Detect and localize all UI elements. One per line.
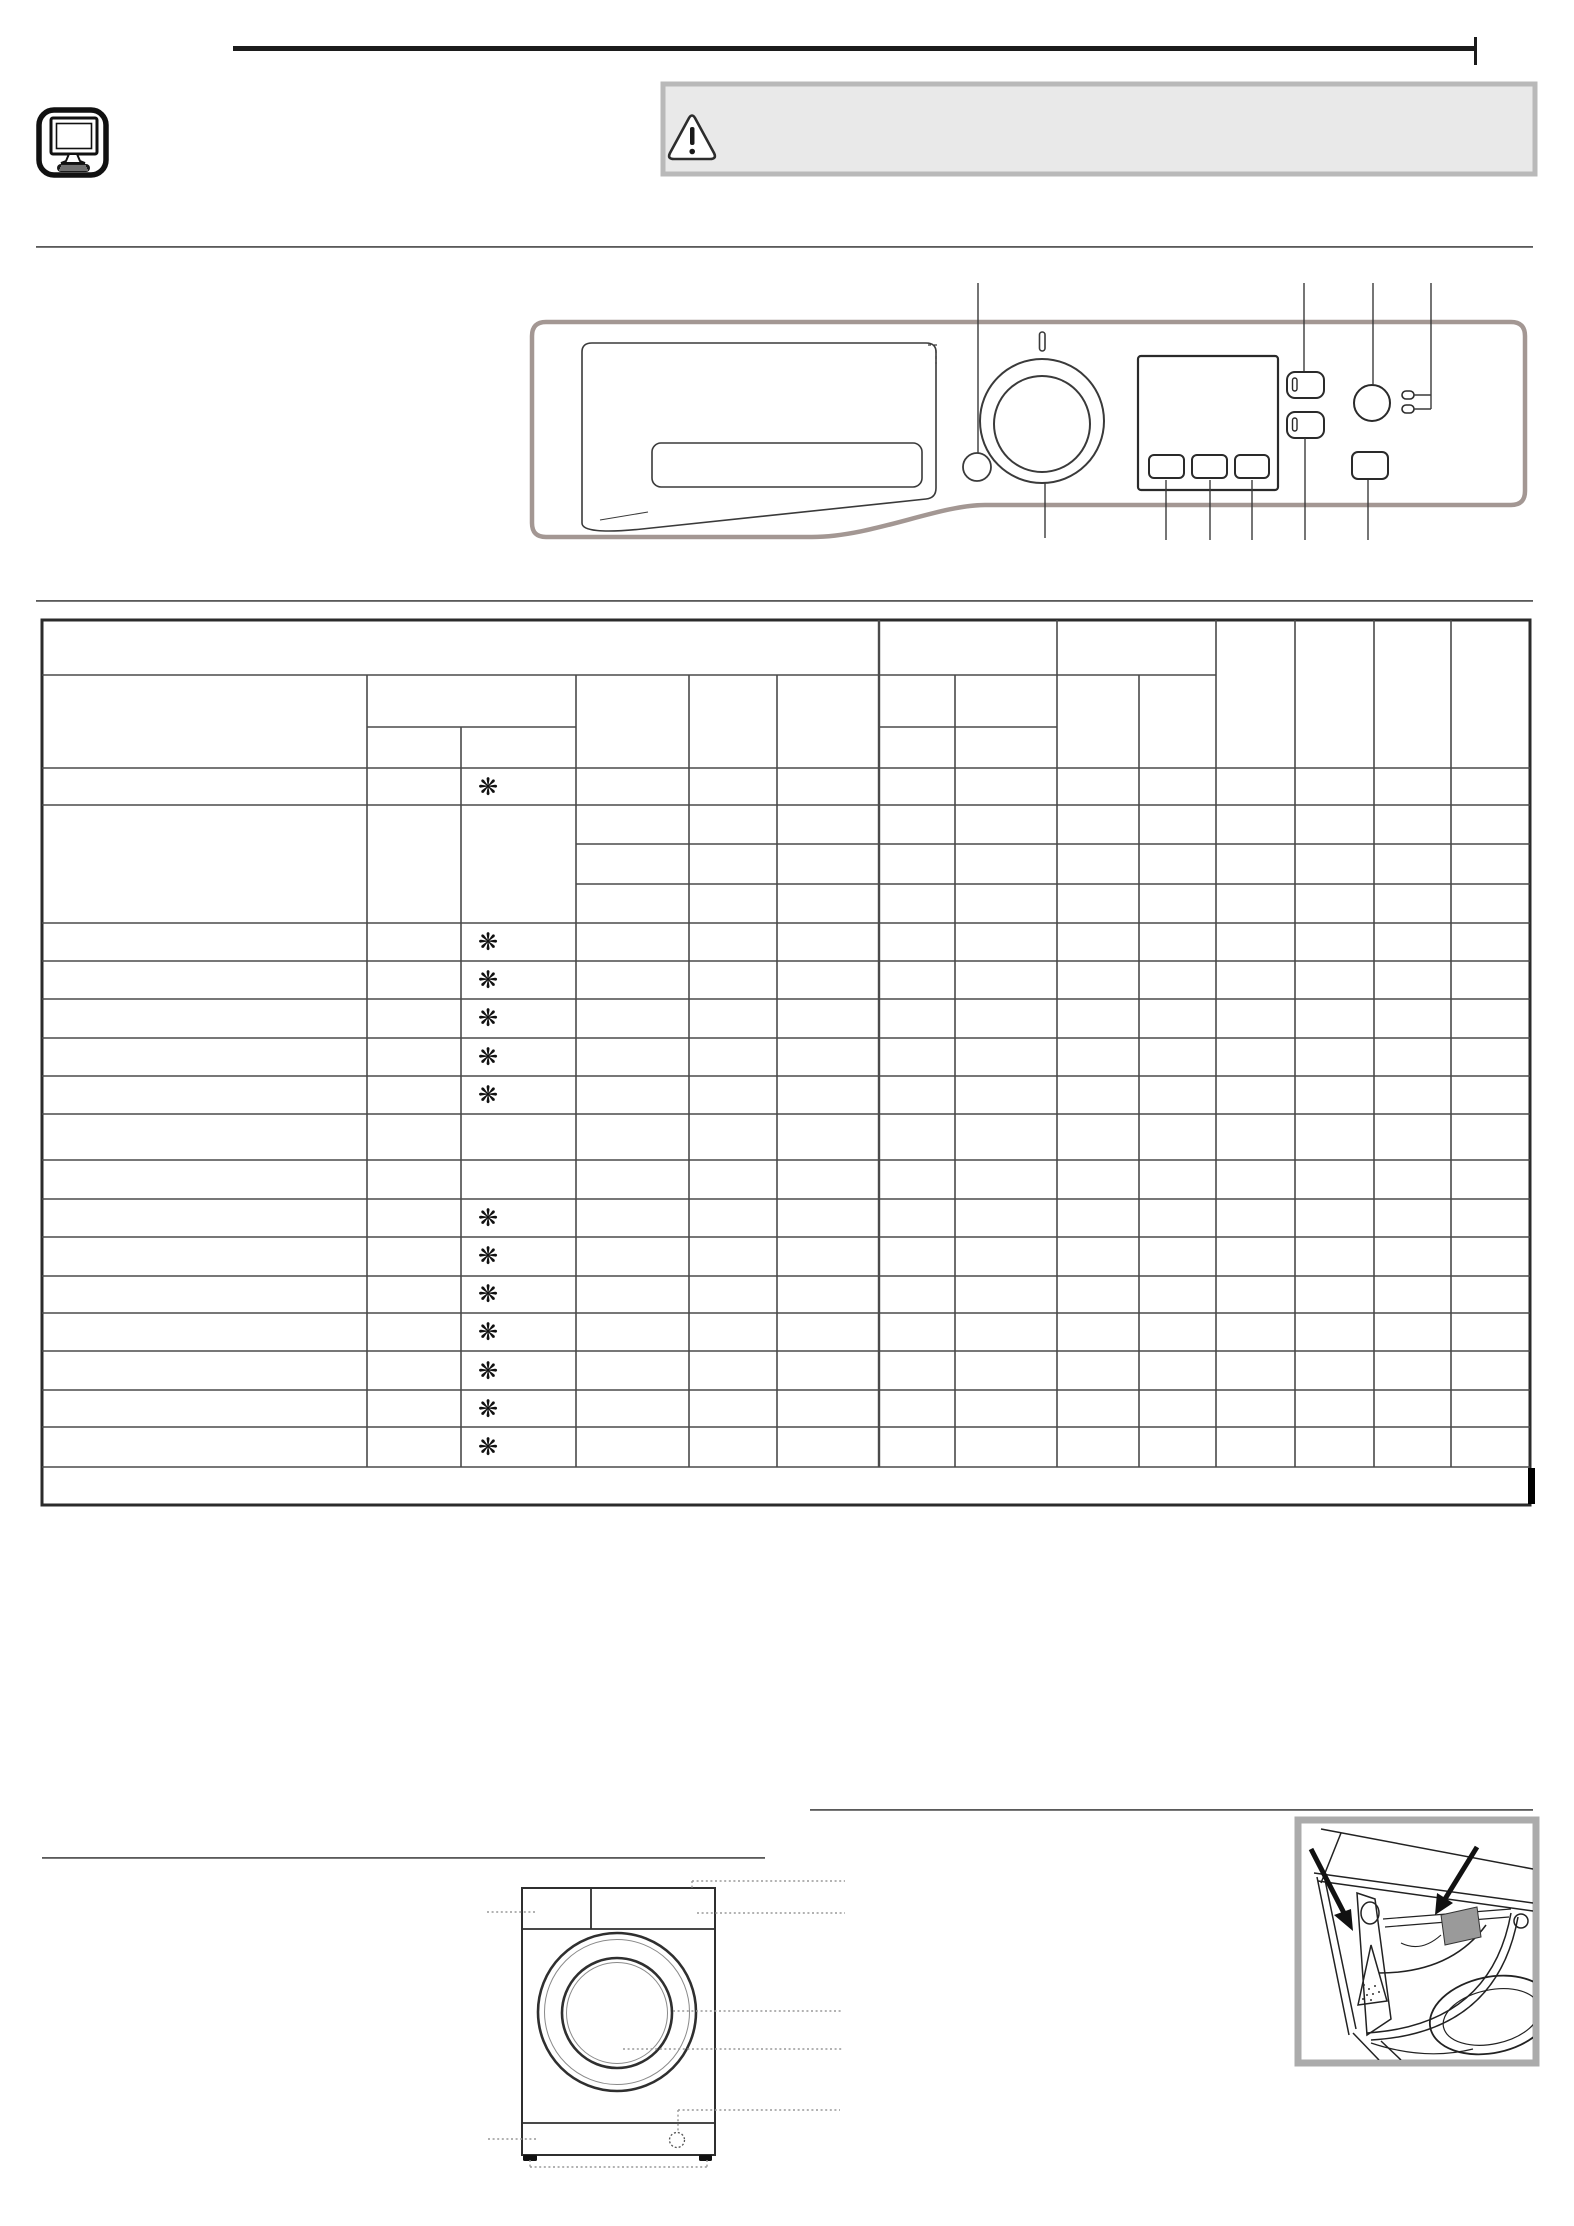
cold-wash-marker: ❋ bbox=[478, 1318, 498, 1346]
cold-wash-marker: ❋ bbox=[478, 1357, 498, 1385]
note-row-end-bar bbox=[1528, 1468, 1535, 1504]
start-pause-button bbox=[1352, 452, 1388, 479]
top-rule bbox=[233, 37, 1477, 65]
detergent-drawer-figure bbox=[810, 1809, 1560, 2065]
small-round-button bbox=[963, 453, 991, 481]
led-indicator-2 bbox=[1402, 405, 1414, 413]
program-knob bbox=[980, 332, 1104, 483]
panel-detergent-drawer bbox=[582, 343, 938, 531]
cold-wash-marker: ❋ bbox=[478, 773, 498, 801]
round-button bbox=[1354, 385, 1390, 421]
figure-frame bbox=[1298, 1820, 1536, 2063]
cold-wash-marker: ❋ bbox=[478, 1204, 498, 1232]
top-rule-line bbox=[233, 46, 1477, 51]
left-column-divider bbox=[42, 1857, 765, 1859]
cold-wash-marker: ❋ bbox=[478, 1280, 498, 1308]
cold-wash-marker: ❋ bbox=[478, 928, 498, 956]
option-buttons bbox=[1287, 372, 1324, 438]
cold-wash-marker: ❋ bbox=[478, 1395, 498, 1423]
washer-body bbox=[522, 1888, 715, 2155]
washer-door bbox=[538, 1933, 696, 2091]
washer-front-diagram bbox=[42, 1857, 845, 2167]
led-indicator-1 bbox=[1402, 391, 1414, 399]
drain-filter-cap bbox=[670, 2133, 685, 2148]
cold-wash-marker: ❋ bbox=[478, 1004, 498, 1032]
cold-wash-marker: ❋ bbox=[478, 1433, 498, 1461]
on-off-indicator bbox=[1040, 332, 1046, 351]
cold-wash-markers: ❋ ❋ ❋ ❋ ❋ ❋ ❋ ❋ ❋ ❋ ❋ ❋ ❋ bbox=[478, 773, 498, 1461]
display-screen bbox=[1138, 356, 1278, 490]
control-panel-diagram bbox=[532, 283, 1525, 540]
cold-wash-marker: ❋ bbox=[478, 1043, 498, 1071]
display-button-1 bbox=[1149, 455, 1184, 478]
manual-page: ❋ ❋ ❋ ❋ ❋ ❋ ❋ ❋ ❋ ❋ ❋ ❋ ❋ bbox=[0, 0, 1574, 2226]
warning-box-panel bbox=[663, 84, 1535, 174]
section-divider-table bbox=[36, 600, 1533, 602]
warning-box bbox=[663, 84, 1535, 174]
section-divider-top bbox=[36, 246, 1533, 248]
display-button-2 bbox=[1192, 455, 1227, 478]
program-table: ❋ ❋ ❋ ❋ ❋ ❋ ❋ ❋ ❋ ❋ ❋ ❋ ❋ bbox=[42, 620, 1535, 1505]
table-outer-border bbox=[42, 620, 1530, 1505]
washer-foot-right bbox=[699, 2155, 712, 2161]
computer-icon bbox=[39, 110, 106, 175]
cold-wash-marker: ❋ bbox=[478, 1081, 498, 1109]
cold-wash-marker: ❋ bbox=[478, 1242, 498, 1270]
cold-wash-marker: ❋ bbox=[478, 966, 498, 994]
top-rule-end-tick bbox=[1474, 37, 1477, 65]
display-button-3 bbox=[1235, 455, 1269, 478]
panel-outline bbox=[532, 322, 1525, 537]
page-canvas: ❋ ❋ ❋ ❋ ❋ ❋ ❋ ❋ ❋ ❋ ❋ ❋ ❋ bbox=[0, 0, 1574, 2226]
right-column-divider bbox=[810, 1809, 1533, 1811]
table-grid bbox=[42, 620, 1530, 1467]
